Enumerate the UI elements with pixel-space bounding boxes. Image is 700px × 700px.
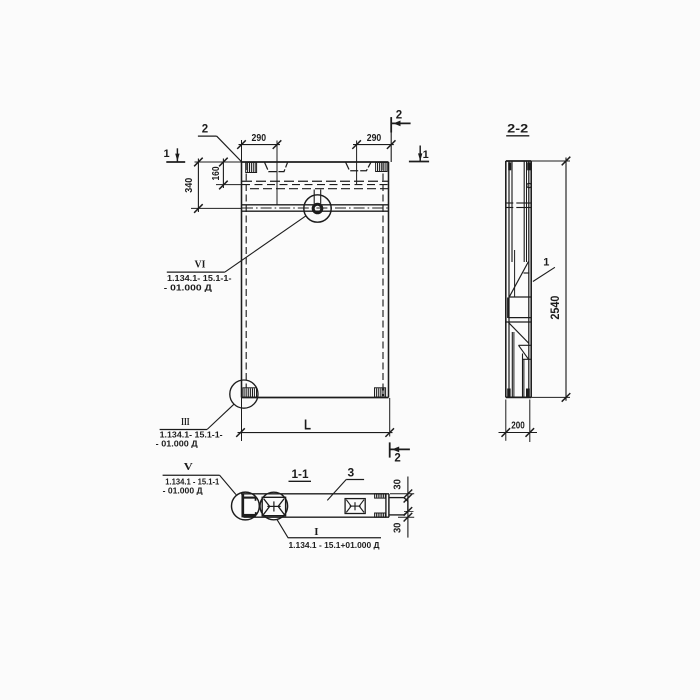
svg-text:3: 3 (348, 466, 355, 480)
svg-text:2: 2 (394, 452, 400, 464)
svg-text:290: 290 (367, 132, 382, 144)
svg-text:- 01.000 Д: - 01.000 Д (164, 282, 212, 292)
svg-text:30: 30 (393, 522, 404, 533)
svg-text:340: 340 (183, 178, 195, 193)
svg-text:1.134.1 - 15.1+01.000 Д: 1.134.1 - 15.1+01.000 Д (289, 540, 380, 550)
svg-text:2540: 2540 (550, 296, 562, 320)
svg-text:L: L (304, 417, 311, 434)
svg-text:2-2: 2-2 (507, 123, 528, 135)
svg-text:2: 2 (202, 124, 208, 136)
svg-text:VI: VI (195, 260, 206, 271)
svg-text:1: 1 (543, 257, 549, 269)
svg-text:290: 290 (252, 132, 267, 144)
svg-text:1: 1 (164, 148, 170, 160)
svg-text:1-1: 1-1 (292, 469, 310, 481)
svg-text:V: V (184, 461, 193, 473)
svg-text:III: III (181, 417, 190, 428)
svg-text:160: 160 (210, 166, 222, 180)
svg-text:200: 200 (511, 419, 525, 431)
svg-text:- 01.000 Д: - 01.000 Д (156, 439, 198, 449)
svg-text:- 01.000 Д: - 01.000 Д (163, 486, 203, 496)
svg-text:I: I (314, 526, 318, 538)
svg-text:30: 30 (393, 479, 404, 490)
svg-text:2: 2 (396, 109, 402, 121)
svg-text:1: 1 (423, 149, 429, 161)
